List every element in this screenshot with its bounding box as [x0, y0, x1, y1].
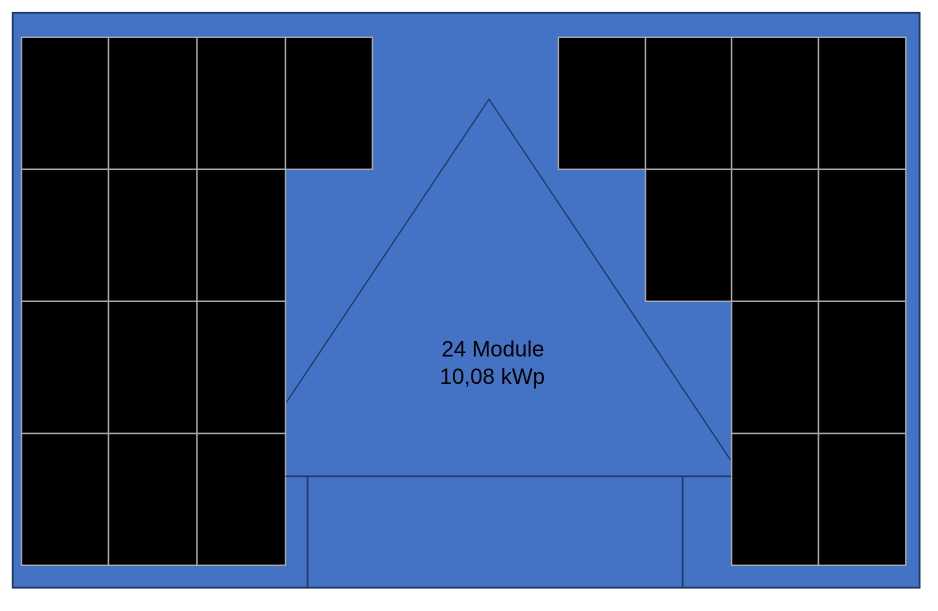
svg-text:10,08 kWp: 10,08 kWp [440, 364, 545, 389]
svg-text:24 Module: 24 Module [442, 336, 545, 361]
